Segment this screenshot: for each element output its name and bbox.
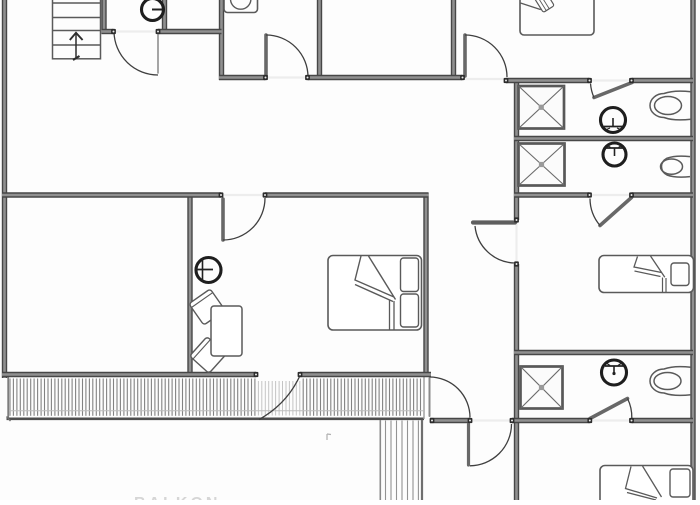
svg-text:BALKON: BALKON [134, 495, 220, 500]
